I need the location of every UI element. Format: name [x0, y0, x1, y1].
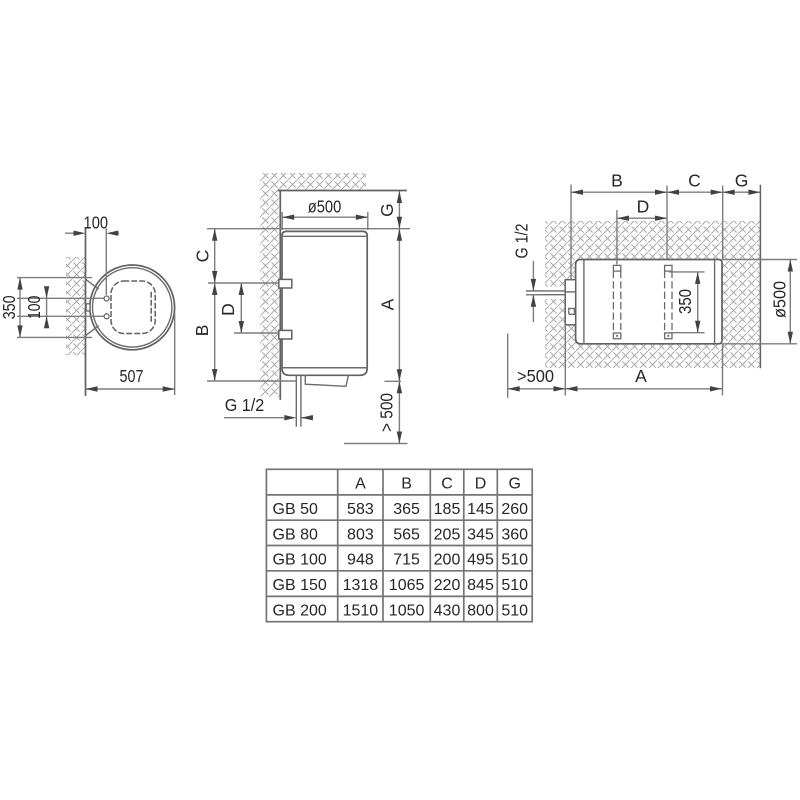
svg-text:800: 800 [467, 603, 494, 620]
svg-text:345: 345 [467, 526, 494, 543]
svg-text:510: 510 [501, 577, 528, 594]
svg-text:D: D [637, 197, 650, 217]
svg-text:145: 145 [467, 501, 494, 518]
svg-text:360: 360 [501, 526, 528, 543]
svg-text:GB 50: GB 50 [273, 501, 318, 518]
svg-text:565: 565 [393, 526, 420, 543]
svg-text:495: 495 [467, 552, 494, 569]
svg-text:GB 80: GB 80 [273, 526, 318, 543]
svg-text:G: G [735, 171, 749, 191]
svg-text:> 500: > 500 [377, 393, 397, 432]
svg-text:200: 200 [434, 552, 461, 569]
svg-text:G 1/2: G 1/2 [225, 395, 265, 415]
svg-text:B: B [611, 171, 623, 191]
svg-text:C: C [688, 171, 701, 191]
svg-text:GB 100: GB 100 [273, 552, 327, 569]
svg-text:C: C [441, 476, 453, 493]
svg-text:185: 185 [434, 501, 461, 518]
svg-text:1050: 1050 [389, 603, 425, 620]
svg-text:GB 200: GB 200 [273, 603, 327, 620]
svg-text:ø500: ø500 [308, 197, 342, 217]
svg-text:510: 510 [501, 552, 528, 569]
svg-text:G 1/2: G 1/2 [512, 224, 532, 259]
svg-text:B: B [192, 325, 212, 337]
svg-text:583: 583 [347, 501, 374, 518]
svg-text:GB 150: GB 150 [273, 577, 327, 594]
svg-text:D: D [218, 303, 238, 316]
svg-text:803: 803 [347, 526, 374, 543]
svg-text:845: 845 [467, 577, 494, 594]
svg-text:350: 350 [0, 295, 19, 319]
svg-text:1318: 1318 [343, 577, 379, 594]
svg-text:365: 365 [393, 501, 420, 518]
svg-text:220: 220 [434, 577, 461, 594]
svg-text:205: 205 [434, 526, 461, 543]
svg-text:G: G [508, 476, 520, 493]
svg-text:G: G [377, 203, 397, 217]
svg-text:350: 350 [675, 289, 695, 314]
svg-text:C: C [193, 250, 213, 263]
svg-text:D: D [475, 476, 487, 493]
svg-text:A: A [635, 366, 647, 386]
svg-text:100: 100 [84, 213, 109, 233]
svg-text:715: 715 [393, 552, 420, 569]
svg-text:B: B [401, 476, 412, 493]
svg-text:A: A [355, 476, 366, 493]
svg-text:>500: >500 [517, 366, 554, 386]
svg-text:260: 260 [501, 501, 528, 518]
svg-text:430: 430 [434, 603, 461, 620]
svg-text:510: 510 [501, 603, 528, 620]
svg-text:ø500: ø500 [770, 281, 790, 318]
svg-text:100: 100 [24, 295, 44, 319]
svg-text:A: A [378, 298, 398, 310]
svg-text:1510: 1510 [343, 603, 379, 620]
svg-text:507: 507 [120, 366, 144, 386]
svg-text:1065: 1065 [389, 577, 425, 594]
svg-text:948: 948 [347, 552, 374, 569]
